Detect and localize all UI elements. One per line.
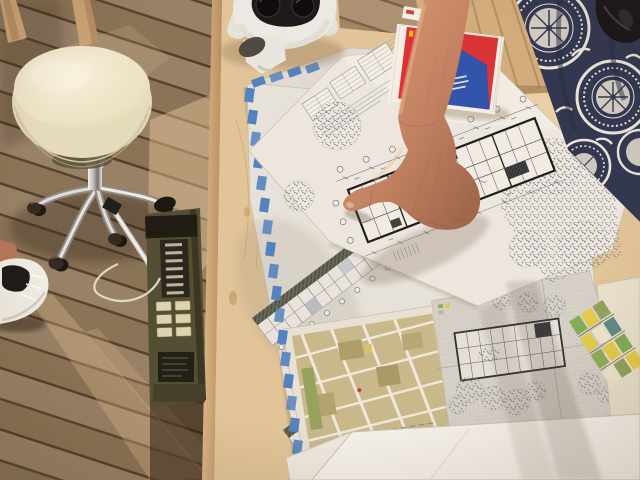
- photo-stage: S: [0, 0, 640, 480]
- vignette: [0, 0, 640, 480]
